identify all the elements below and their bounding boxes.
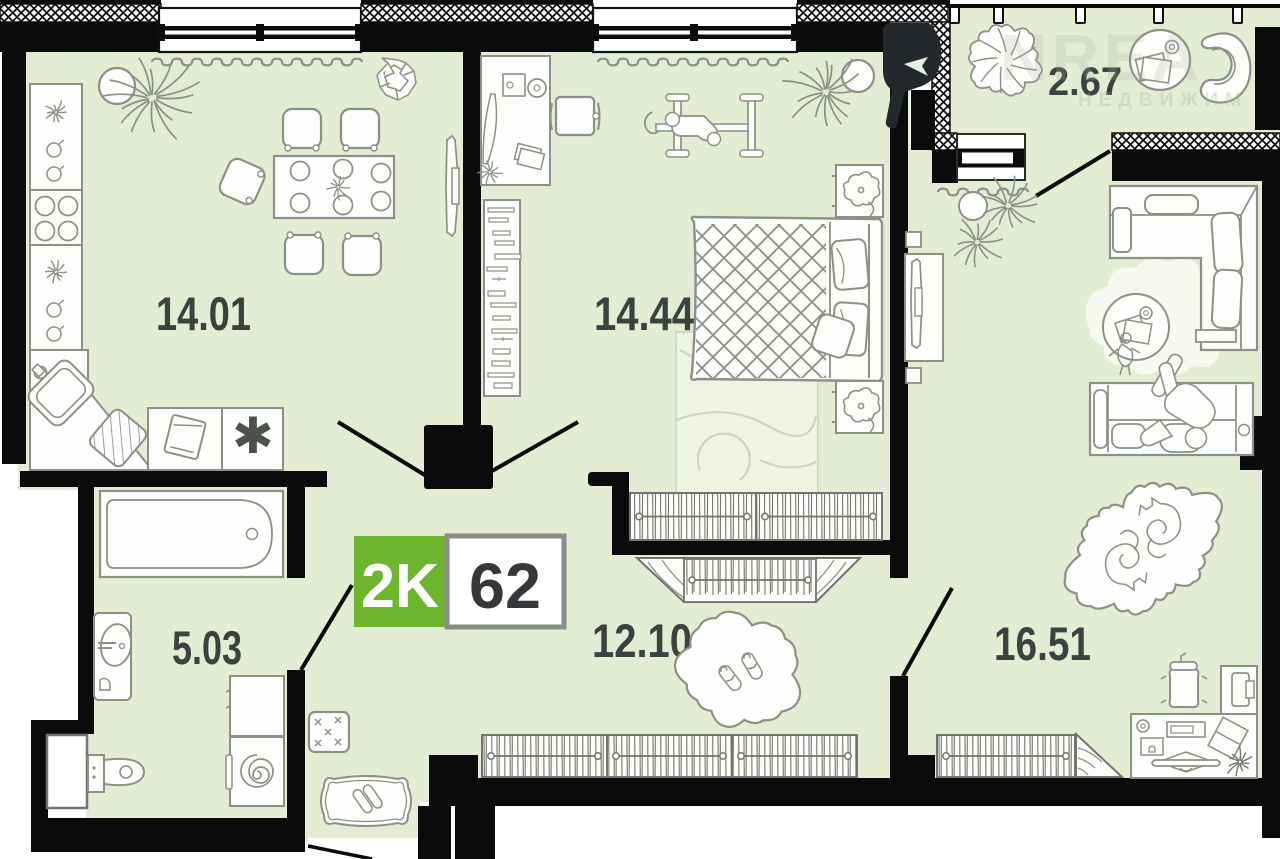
svg-text:62: 62 bbox=[469, 550, 541, 622]
svg-text:НЕДВИЖИМ: НЕДВИЖИМ bbox=[1078, 90, 1248, 111]
svg-text:5.03: 5.03 bbox=[172, 621, 242, 674]
svg-text:NREA: NREA bbox=[1000, 20, 1203, 94]
svg-text:14.44: 14.44 bbox=[594, 287, 694, 340]
svg-text:✱: ✱ bbox=[232, 408, 274, 464]
svg-text:16.51: 16.51 bbox=[994, 617, 1091, 670]
svg-text:2K: 2K bbox=[361, 552, 439, 621]
svg-text:14.01: 14.01 bbox=[156, 287, 251, 340]
